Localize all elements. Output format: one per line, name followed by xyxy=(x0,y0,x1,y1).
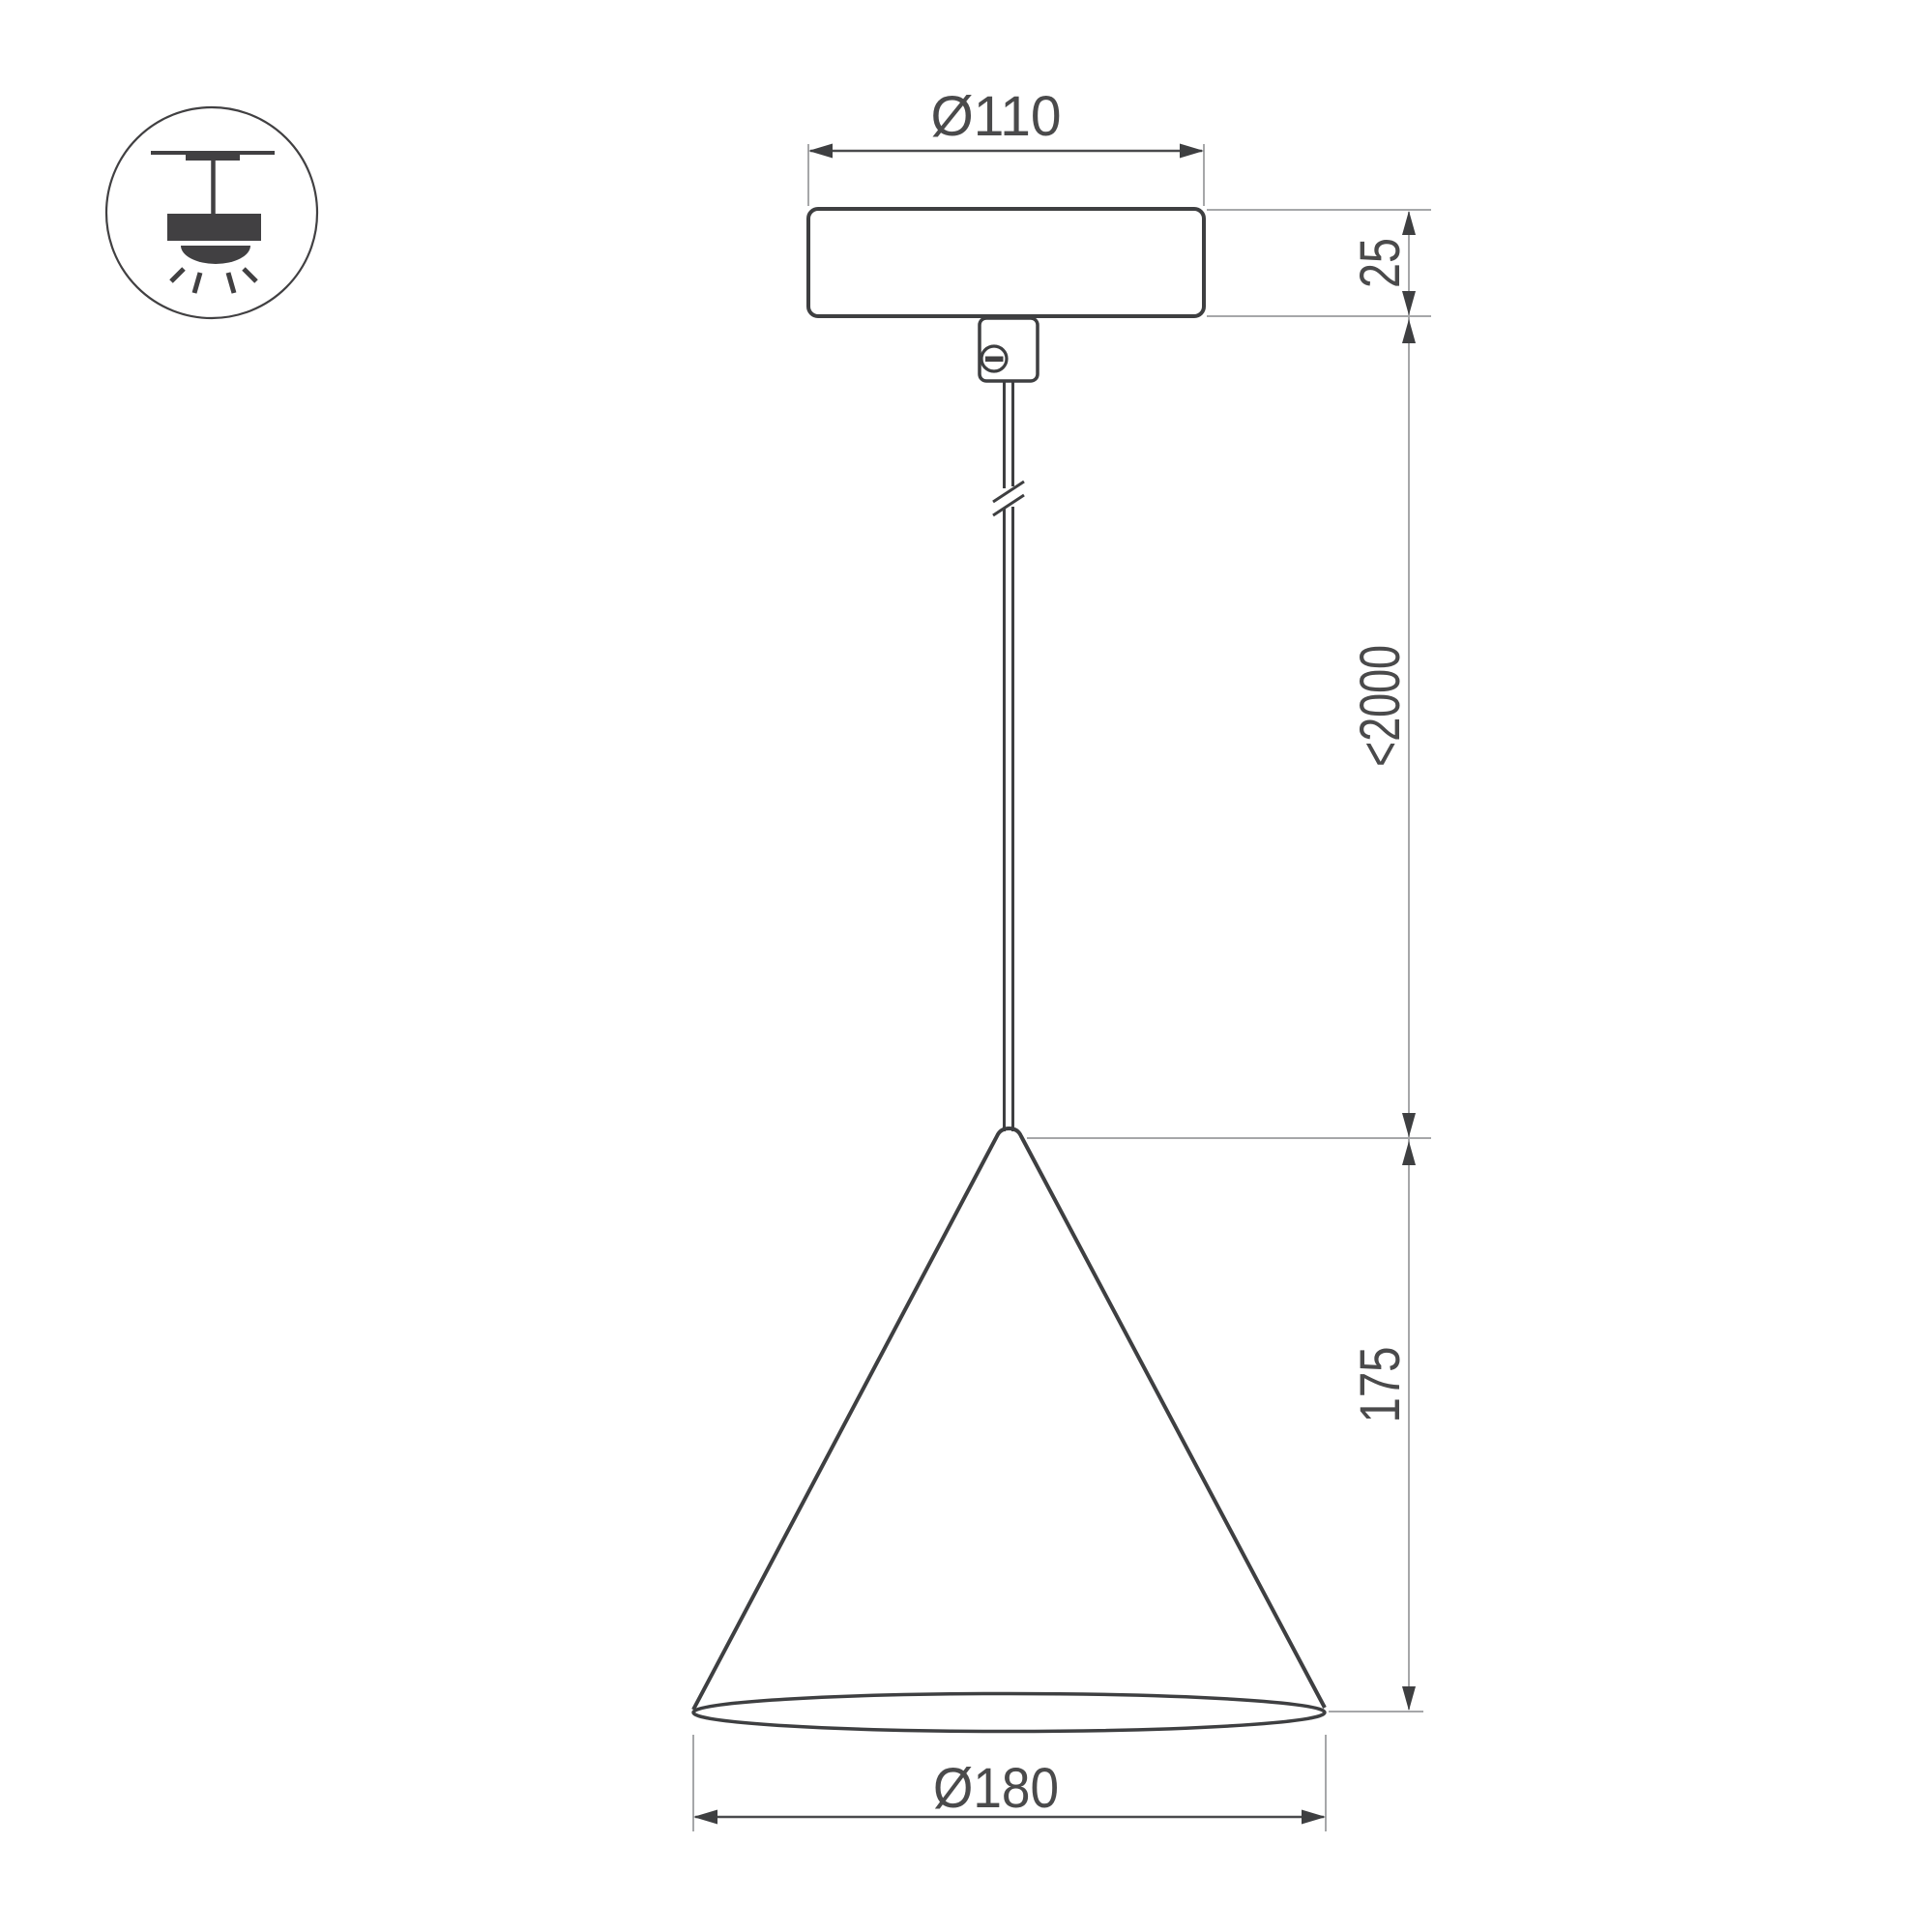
dim-canopy-height: 25 xyxy=(1349,211,1416,315)
shade-diameter-label: Ø180 xyxy=(933,1757,1059,1820)
canopy-diameter-label: Ø110 xyxy=(931,85,1062,148)
dim-shade-height: 175 xyxy=(1349,1141,1416,1711)
dim-canopy-diameter: Ø110 xyxy=(808,85,1204,206)
icon-lamp-body xyxy=(167,214,261,241)
dimension-drawing-canvas: Ø110 25 <2000 175 Ø180 xyxy=(0,0,1932,1932)
cone-shade-sides xyxy=(693,1128,1325,1710)
suspension-length-label: <2000 xyxy=(1349,645,1412,767)
pendant-ceiling-light-icon xyxy=(106,107,317,318)
canopy-body xyxy=(808,209,1204,316)
icon-light-rays xyxy=(171,269,256,293)
dim-right-column-extension-lines xyxy=(1027,210,1431,1712)
cone-shade-bottom-rim xyxy=(693,1694,1325,1732)
cone-shade xyxy=(693,1128,1325,1732)
dim-suspension-length: <2000 xyxy=(1349,319,1416,1137)
dim-shade-diameter: Ø180 xyxy=(693,1735,1326,1831)
screw-slot xyxy=(985,357,1004,363)
icon-light-dome xyxy=(181,246,250,264)
canopy-height-label: 25 xyxy=(1349,238,1412,288)
cable-break-symbol xyxy=(993,482,1024,515)
shade-height-label: 175 xyxy=(1349,1347,1412,1423)
cable-gland xyxy=(980,318,1038,381)
